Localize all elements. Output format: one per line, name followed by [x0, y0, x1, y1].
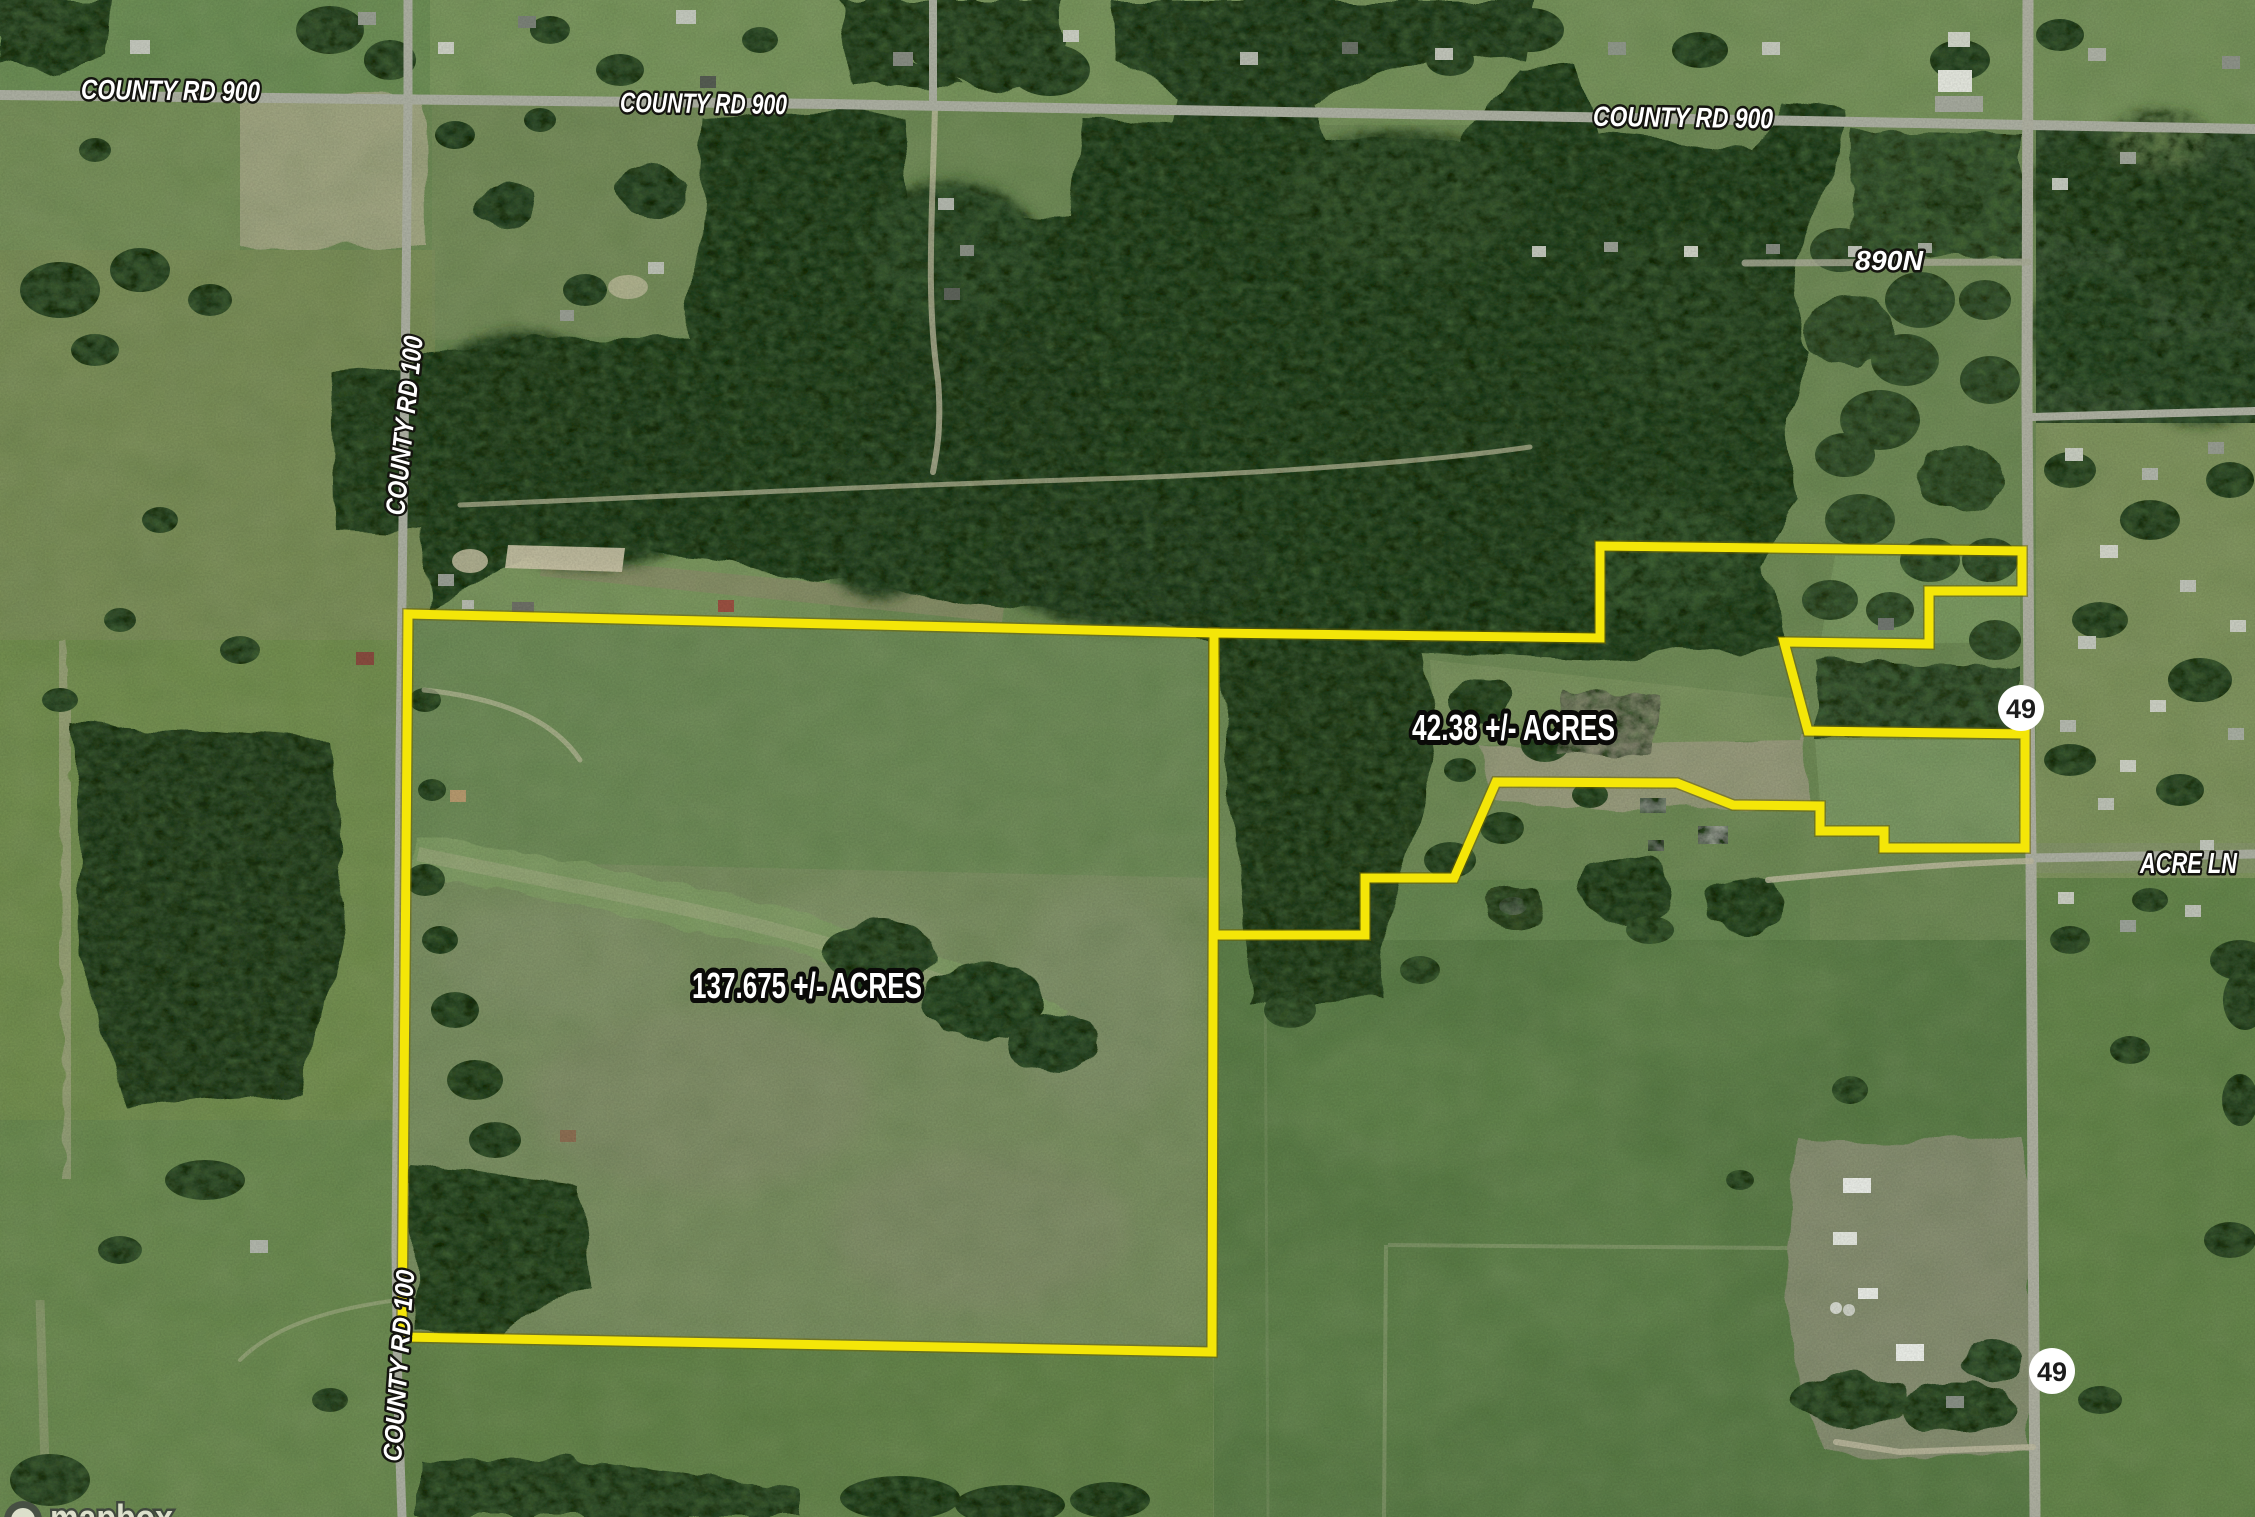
svg-text:137.675 +/- ACRES: 137.675 +/- ACRES: [692, 965, 922, 1006]
svg-text:COUNTY RD 900: COUNTY RD 900: [620, 87, 788, 120]
svg-text:COUNTY RD 900: COUNTY RD 900: [1593, 101, 1774, 135]
svg-text:ACRE LN: ACRE LN: [2139, 848, 2238, 880]
svg-text:42.38 +/- ACRES: 42.38 +/- ACRES: [1412, 707, 1615, 748]
svg-text:COUNTY RD 900: COUNTY RD 900: [81, 74, 261, 107]
svg-text:49: 49: [2006, 694, 2036, 724]
svg-text:49: 49: [2037, 1357, 2067, 1387]
svg-text:mapbox: mapbox: [50, 1498, 173, 1517]
svg-text:890N: 890N: [1855, 245, 1924, 276]
